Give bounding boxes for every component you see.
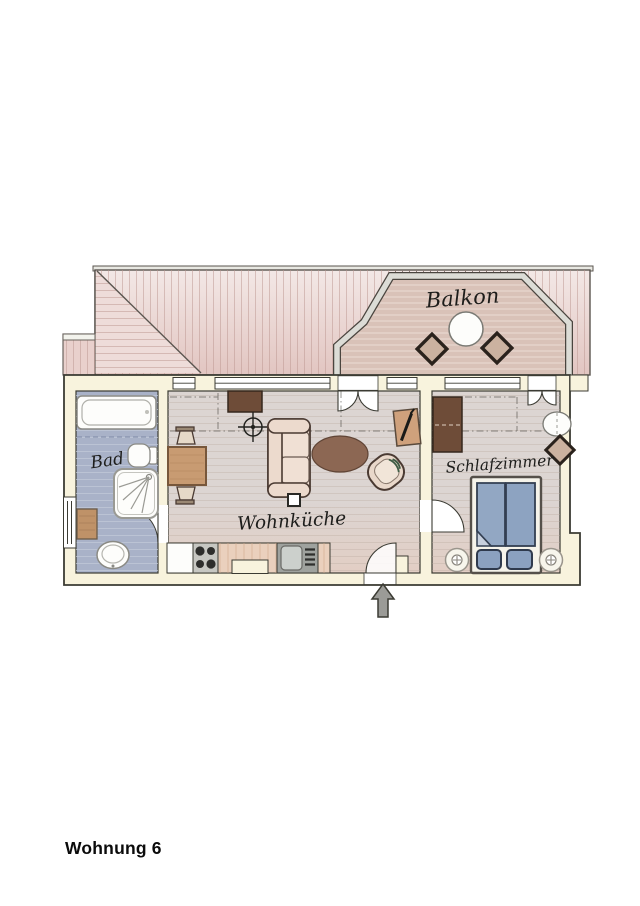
stool-bottom bbox=[176, 487, 195, 504]
dining-table bbox=[168, 447, 206, 485]
roof-left-wing bbox=[63, 334, 95, 375]
double-bed bbox=[471, 477, 541, 573]
stove bbox=[193, 543, 218, 573]
mirror-board bbox=[393, 409, 421, 446]
shower bbox=[114, 469, 158, 518]
nightstand-left bbox=[446, 549, 469, 572]
stool-top bbox=[176, 427, 195, 444]
plan-title: Wohnung 6 bbox=[65, 838, 162, 859]
kitchen-sink bbox=[277, 543, 318, 573]
pillow-right bbox=[507, 550, 532, 569]
window-band-b bbox=[215, 378, 330, 390]
wardrobe bbox=[433, 397, 462, 452]
floor-plan-page: Balkon bbox=[0, 0, 640, 906]
coffee-table bbox=[312, 436, 368, 472]
washbasin bbox=[97, 542, 129, 569]
side-cube bbox=[288, 494, 300, 506]
nightstand-right bbox=[540, 549, 563, 572]
side-table bbox=[543, 412, 571, 436]
wall-notch bbox=[232, 560, 268, 574]
fridge bbox=[167, 543, 193, 573]
bathtub bbox=[77, 396, 156, 429]
window-band-a bbox=[173, 378, 195, 390]
entrance-arrow-icon bbox=[372, 584, 394, 617]
pillow-left bbox=[477, 550, 501, 569]
sofa bbox=[268, 419, 310, 497]
wall-jog-right bbox=[570, 375, 588, 391]
balcony-round-table bbox=[449, 312, 483, 346]
bathroom-window bbox=[64, 497, 77, 548]
wall-cabinet bbox=[228, 391, 262, 412]
window-band-c bbox=[387, 378, 417, 390]
bath-cabinet bbox=[77, 509, 97, 539]
kitchen-row bbox=[167, 543, 330, 574]
floor-plan-canvas: Balkon bbox=[0, 0, 640, 906]
entrance-wall-stub bbox=[396, 556, 408, 573]
window-band-d bbox=[445, 378, 520, 390]
toilet bbox=[128, 444, 157, 467]
